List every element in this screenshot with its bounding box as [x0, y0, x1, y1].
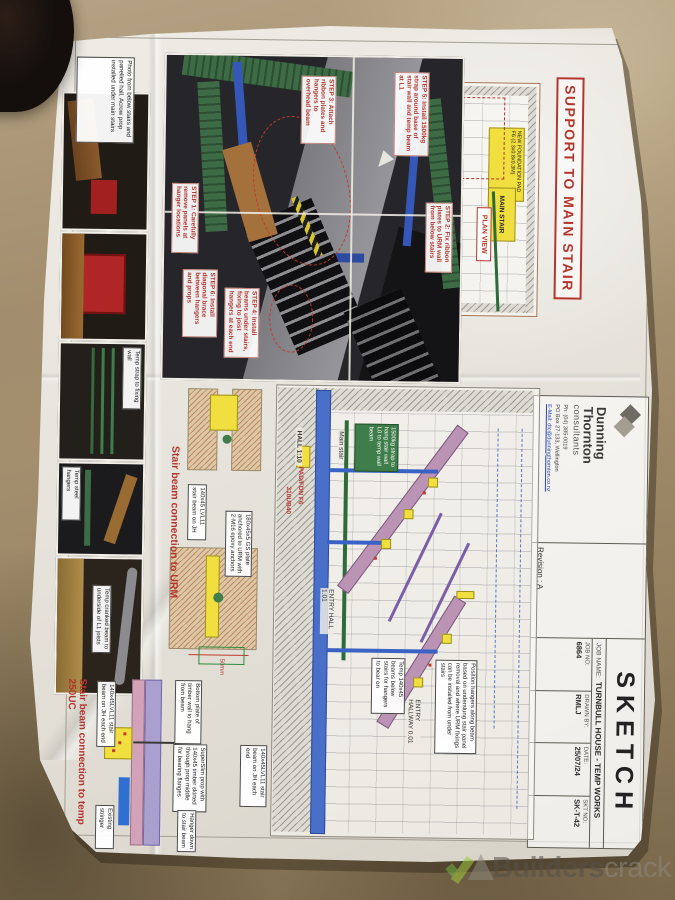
strap-note: 1500kg strap to hang stair wall L0 to te… — [354, 423, 399, 472]
position-hangers-note: Position hangers along beam based on und… — [435, 660, 478, 755]
anchor-bolt — [213, 593, 223, 603]
uc-detail-heading: Stair beam connection to temp 250UC — [64, 678, 88, 845]
urm-plate-note: 180x45x5 GS plate anchored to URM with 2… — [225, 511, 252, 577]
doc-type: SKETCH — [604, 639, 645, 849]
title-block-logo-cell: Dunning Thornton consultants Ph: (04) 38… — [532, 396, 648, 544]
uc-wall-note: Bottom plate of timber wall to hang from… — [175, 680, 202, 744]
site-photo-3: Temp strap to fixing wall — [57, 341, 147, 461]
yellow-highlight — [413, 677, 423, 687]
company-name-line3: consultants — [570, 405, 582, 537]
drawn-by-label: DRAWN BY: — [582, 694, 589, 740]
plan-main-stair-label: MAIN STAIR — [498, 195, 506, 233]
yellow-highlight — [403, 509, 413, 519]
site-photo-2 — [59, 231, 149, 341]
step-label-5: STEP 5: Install 1500kg strap around base… — [394, 72, 430, 156]
uc-hanger-note: Hanger down to stair beam — [177, 810, 197, 852]
builderscrack-logo-icon — [448, 850, 492, 886]
skt-no-label: SKT NO: — [581, 799, 588, 845]
job-no-label: JOB NO: — [583, 642, 590, 688]
anchor-bolt — [222, 435, 231, 444]
uc-prop-note: SuperSlim prop with 140x45 timber skirte… — [172, 744, 207, 812]
contact-phone: Ph: (04) 385-0019 — [558, 404, 568, 536]
date-label: DATE: — [582, 747, 589, 793]
urm-detail-plate-highlight — [210, 394, 238, 430]
sketch-sheet: SUPPORT TO MAIN STAIR Dunning Thornton c… — [56, 30, 657, 853]
section-title: HALL 1:10 — [295, 428, 303, 466]
ub-label: 310UB40 — [284, 487, 291, 515]
entry-hallway-label: ENTRY HALLWAY 0.01 — [406, 698, 421, 752]
photo-caption-3: Temp strap to fixing wall — [122, 347, 142, 409]
red-marker — [374, 557, 377, 560]
job-name-label: JOB NAME: — [594, 643, 601, 678]
watermark: Builderscrack — [448, 845, 673, 891]
title-block-main-cell: SKETCH JOB NAME: TURNBULL HOUSE - TEMP W… — [528, 637, 645, 849]
step-label-4: STEP 4: Install beams under stairs, fixi… — [224, 288, 260, 358]
yellow-highlight — [442, 634, 452, 644]
step-label-1: STEP 1: Carefully remove panels at hange… — [171, 183, 199, 253]
urm-beam-note: 140x45 LVL11 stair beam on JH — [187, 484, 207, 540]
section-drawing: HALL 1:10 PAD/FDN F6 310UB40 Main stair … — [270, 384, 540, 840]
paper: SUPPORT TO MAIN STAIR Dunning Thornton c… — [0, 0, 675, 900]
uc-blue-stringer — [118, 777, 130, 825]
company-name-line2: Thornton — [580, 407, 595, 537]
main-stair-label: Main stair — [337, 430, 344, 460]
uc-beam-250 — [143, 680, 162, 846]
entry-hall-label: ENTRY HALL 1.01 — [320, 588, 335, 634]
watermark-bold: Builders — [492, 852, 604, 884]
red-marker — [428, 664, 431, 667]
step-label-6: STEP 6: Install diagonal brace between h… — [182, 269, 218, 337]
uc-timber-plate — [130, 679, 145, 845]
watermark-light: crack — [604, 852, 671, 884]
job-no-value: 6864 — [574, 642, 584, 688]
uc-beam-note: 140x45LVL11 stair beam on JH each end — [96, 681, 116, 747]
urm-detail-heading: Stair beam connection to URM — [167, 446, 181, 598]
step-label-2: STEP 2: Fix ribbon plates to URM wall fr… — [425, 202, 453, 272]
green-highlight-box — [198, 646, 244, 665]
red-marker — [423, 491, 426, 494]
yellow-highlight — [428, 478, 438, 488]
stair-beam-note-2: 140x45LVL11 stair beam on JH each end — [240, 745, 267, 807]
uc-stringer-note: Existing stringer — [95, 805, 115, 849]
pad-label: PAD/FDN F6 — [297, 467, 305, 505]
yellow-highlight — [456, 591, 474, 599]
photo-caption-4: Temp steel hangers — [61, 466, 81, 520]
site-photo-4: Temp steel hangers — [56, 461, 145, 556]
plan-view-label: PLAN VIEW — [476, 207, 492, 261]
revision-cell: Revision : A — [531, 542, 646, 639]
skt-no-value: SK-T-42 — [572, 799, 582, 845]
blue-prop — [327, 540, 383, 545]
photo-caption-5: Temp cranked beam to underside of L1 joi… — [92, 585, 112, 653]
site-photo-collage: STEP 5: Install 1500kg strap around base… — [160, 53, 465, 384]
step-label-3: STEP 3: Attach ribbon plates and hangers… — [301, 76, 337, 144]
job-name-value: TURNBULL HOUSE - TEMP WORKS — [592, 682, 603, 818]
site-photo-5: Temp cranked beam to underside of L1 joi… — [54, 556, 144, 695]
photo-caption-1: Photo from below stairs and panelled hal… — [76, 57, 135, 144]
floor: SUPPORT TO MAIN STAIR Dunning Thornton c… — [0, 0, 675, 900]
drawn-by-value: RMLJ — [573, 694, 583, 740]
yellow-highlight — [381, 539, 391, 549]
temp-beams-note: Temp 140x45 beams below stairs for hange… — [371, 658, 406, 714]
date-value: 25/07/24 — [573, 747, 583, 793]
drawing-title: SUPPORT TO MAIN STAIR — [554, 77, 585, 299]
title-block: Dunning Thornton consultants Ph: (04) 38… — [527, 395, 649, 850]
